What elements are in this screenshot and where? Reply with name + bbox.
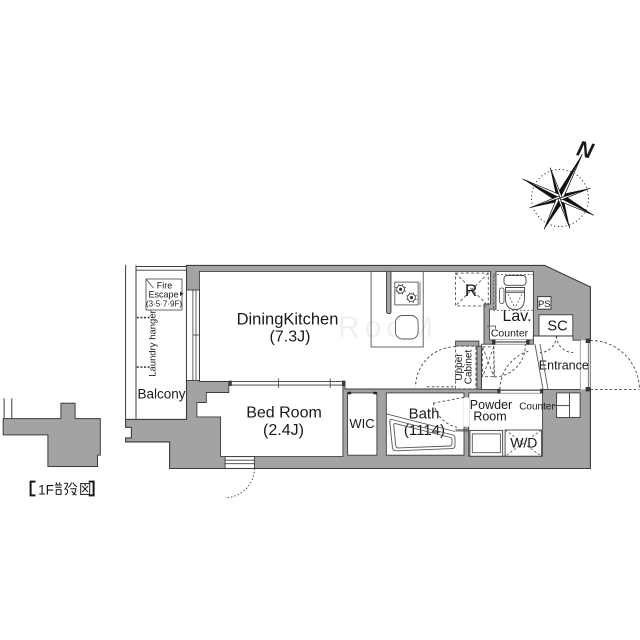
- svg-text:(7.3J): (7.3J): [270, 329, 311, 346]
- svg-text:DiningKitchen: DiningKitchen: [237, 311, 339, 329]
- svg-text:Counter: Counter: [519, 402, 555, 413]
- svg-text:Balcony: Balcony: [137, 386, 185, 401]
- svg-text:N: N: [574, 135, 597, 163]
- svg-text:Room: Room: [473, 410, 506, 424]
- svg-text:R: R: [465, 281, 477, 300]
- svg-text:Cabinet: Cabinet: [464, 350, 475, 385]
- svg-text:Entrance: Entrance: [539, 359, 589, 373]
- svg-text:(2.4J): (2.4J): [263, 422, 304, 439]
- svg-text:Laundry hanger: Laundry hanger: [148, 310, 159, 377]
- svg-text:WIC: WIC: [349, 416, 374, 431]
- svg-text:SC: SC: [547, 319, 567, 335]
- svg-text:Escape: Escape: [148, 290, 178, 300]
- svg-text:Counter: Counter: [491, 328, 529, 340]
- svg-text:Bed Room: Bed Room: [246, 405, 322, 422]
- svg-text:PS: PS: [538, 299, 551, 310]
- svg-text:W/D: W/D: [510, 434, 537, 450]
- svg-text:1F: 1F: [38, 483, 54, 498]
- svg-text:(3·5·7·9F): (3·5·7·9F): [146, 300, 182, 309]
